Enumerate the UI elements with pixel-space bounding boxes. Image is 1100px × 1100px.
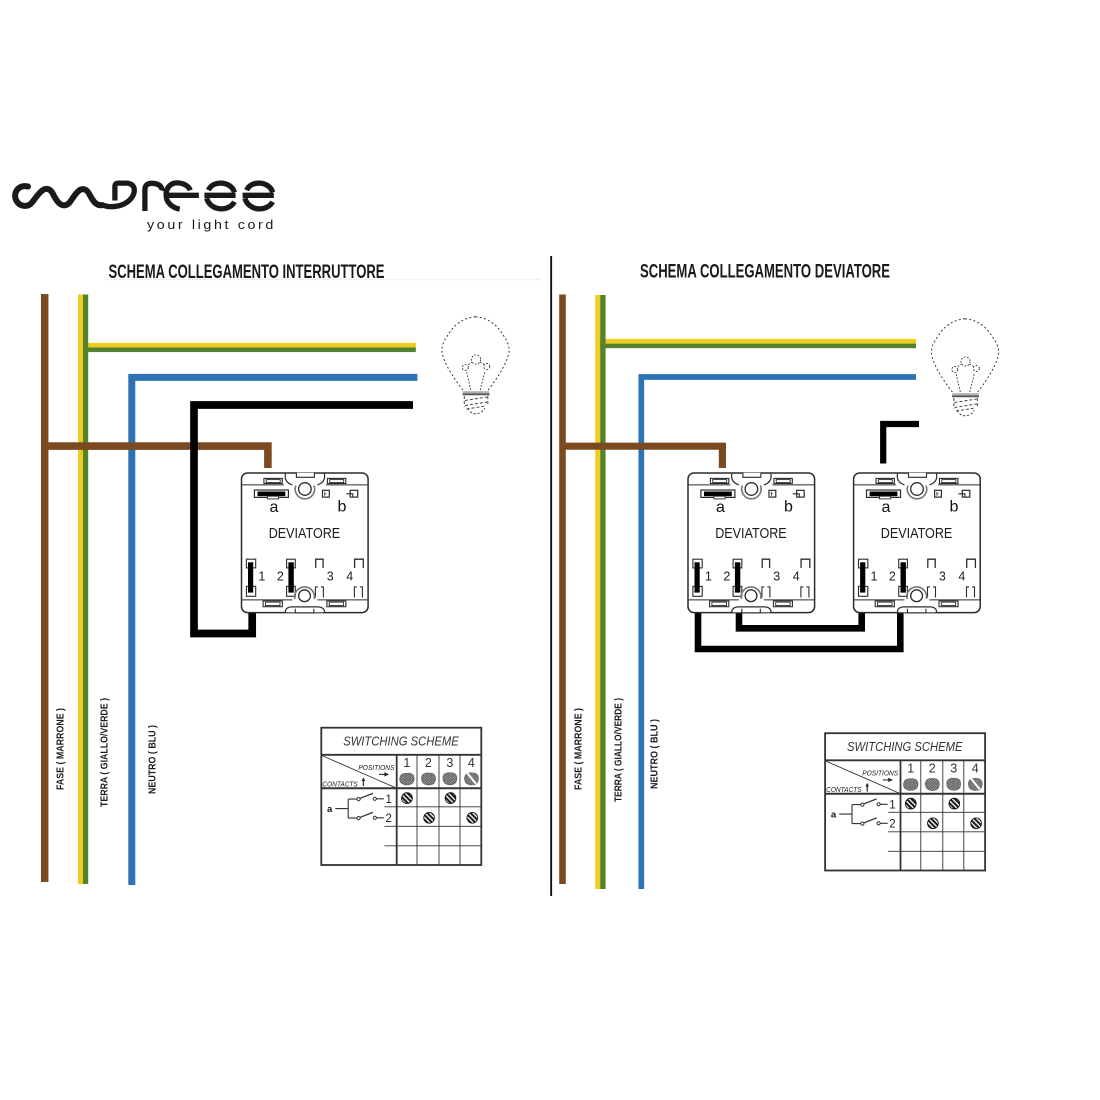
svg-text:SCHEMA COLLEGAMENTO INTERRUTTO: SCHEMA COLLEGAMENTO INTERRUTTORE: [109, 262, 385, 283]
svg-text:your light cord: your light cord: [147, 217, 276, 232]
svg-text:FASE ( MARRONE ): FASE ( MARRONE ): [56, 708, 67, 790]
svg-text:TERRA ( GIALLO/VERDE ): TERRA ( GIALLO/VERDE ): [99, 698, 110, 807]
svg-text:FASE ( MARRONE ): FASE ( MARRONE ): [573, 708, 584, 790]
svg-text:NEUTRO ( BLU ): NEUTRO ( BLU ): [649, 719, 660, 789]
svg-text:NEUTRO ( BLU ): NEUTRO ( BLU ): [147, 725, 158, 794]
svg-text:SCHEMA COLLEGAMENTO DEVIATORE: SCHEMA COLLEGAMENTO DEVIATORE: [640, 262, 890, 283]
svg-text:TERRA ( GIALLO/VERDE ): TERRA ( GIALLO/VERDE ): [613, 698, 624, 802]
